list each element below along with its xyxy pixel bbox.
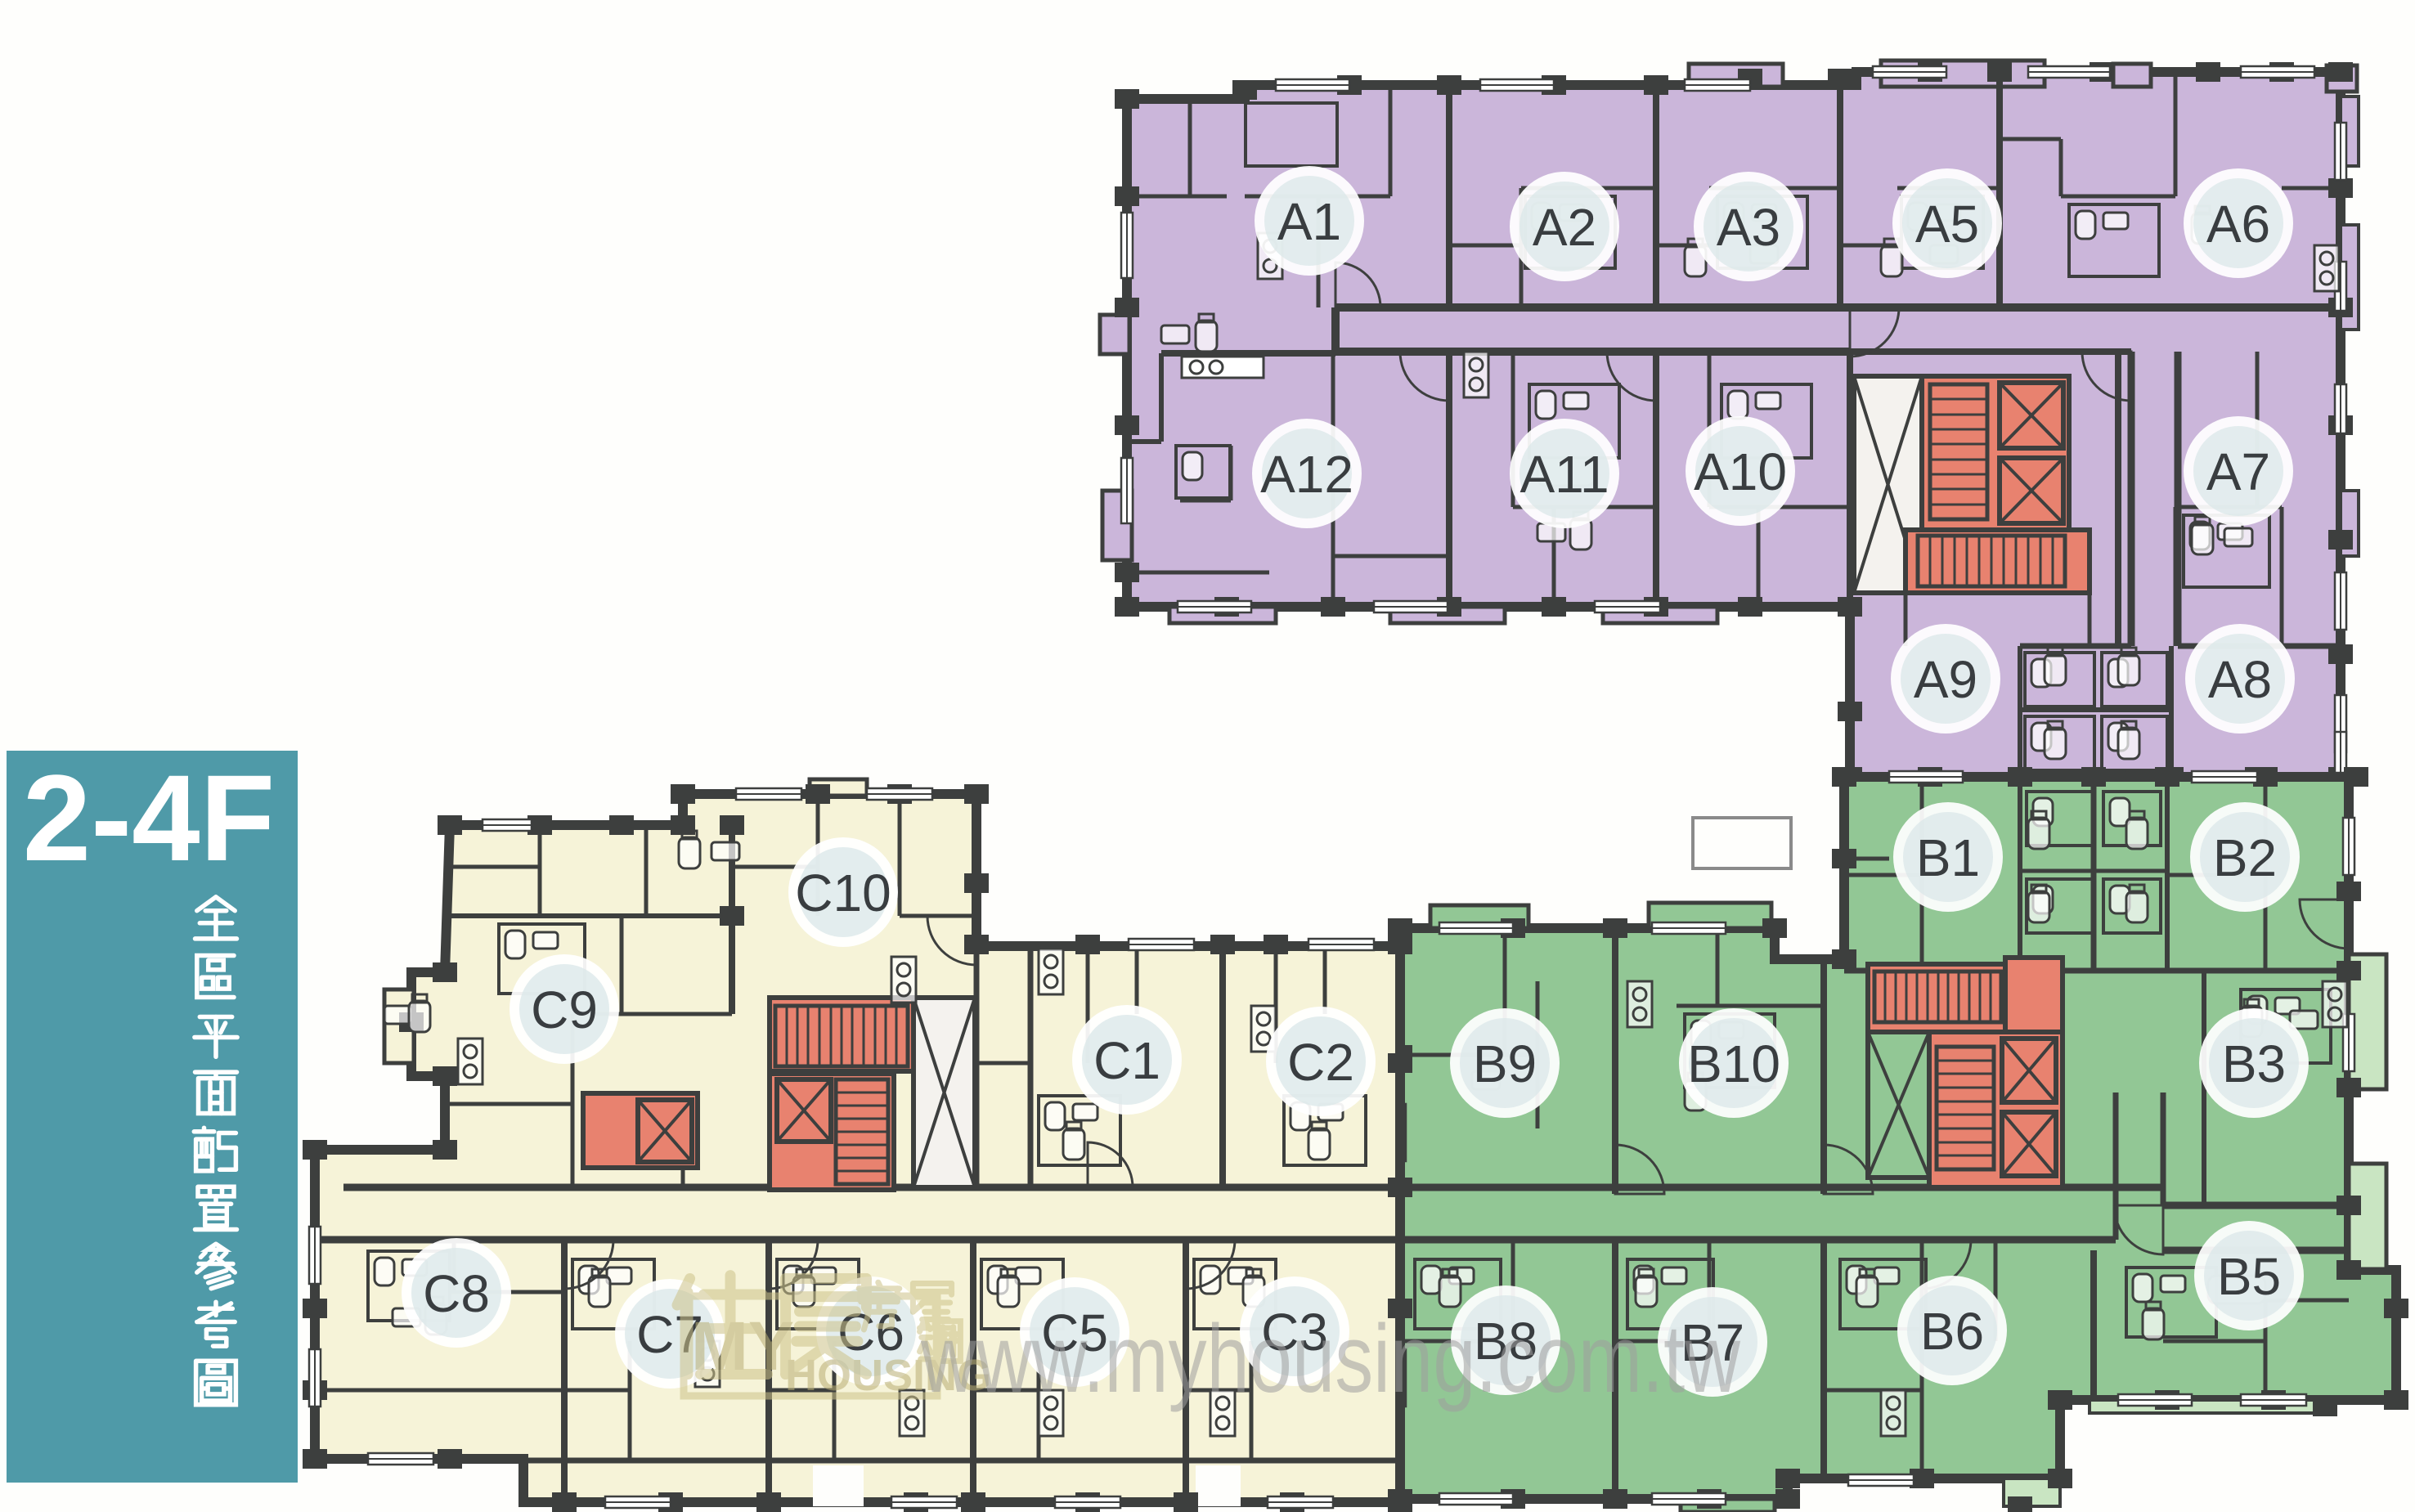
svg-text:A2: A2 — [1533, 198, 1596, 257]
svg-text:A8: A8 — [2208, 650, 2272, 709]
svg-text:MY: MY — [691, 1308, 794, 1384]
svg-text:A9: A9 — [1914, 650, 1977, 709]
svg-text:C1: C1 — [1093, 1031, 1160, 1090]
svg-text:A3: A3 — [1717, 198, 1780, 257]
svg-text:B2: B2 — [2213, 828, 2277, 887]
svg-text:B3: B3 — [2222, 1034, 2286, 1093]
svg-text:A1: A1 — [1277, 192, 1341, 251]
svg-text:A10: A10 — [1694, 442, 1787, 501]
svg-text:2-4F: 2-4F — [23, 749, 275, 886]
svg-text:A5: A5 — [1915, 195, 1979, 253]
svg-text:B5: B5 — [2217, 1247, 2281, 1306]
svg-text:B6: B6 — [1920, 1302, 1984, 1361]
svg-text:A7: A7 — [2206, 442, 2270, 501]
svg-text:www.myhousing.com.tw: www.myhousing.com.tw — [920, 1305, 1740, 1413]
svg-text:A6: A6 — [2206, 195, 2270, 253]
svg-text:A12: A12 — [1260, 445, 1353, 504]
svg-text:B9: B9 — [1473, 1034, 1537, 1093]
svg-text:C2: C2 — [1287, 1033, 1354, 1092]
svg-text:A11: A11 — [1519, 445, 1609, 504]
svg-text:C8: C8 — [423, 1264, 490, 1323]
svg-text:B1: B1 — [1916, 828, 1980, 887]
svg-text:B10: B10 — [1687, 1034, 1780, 1093]
svg-text:C9: C9 — [531, 980, 598, 1039]
svg-text:C10: C10 — [795, 864, 891, 922]
